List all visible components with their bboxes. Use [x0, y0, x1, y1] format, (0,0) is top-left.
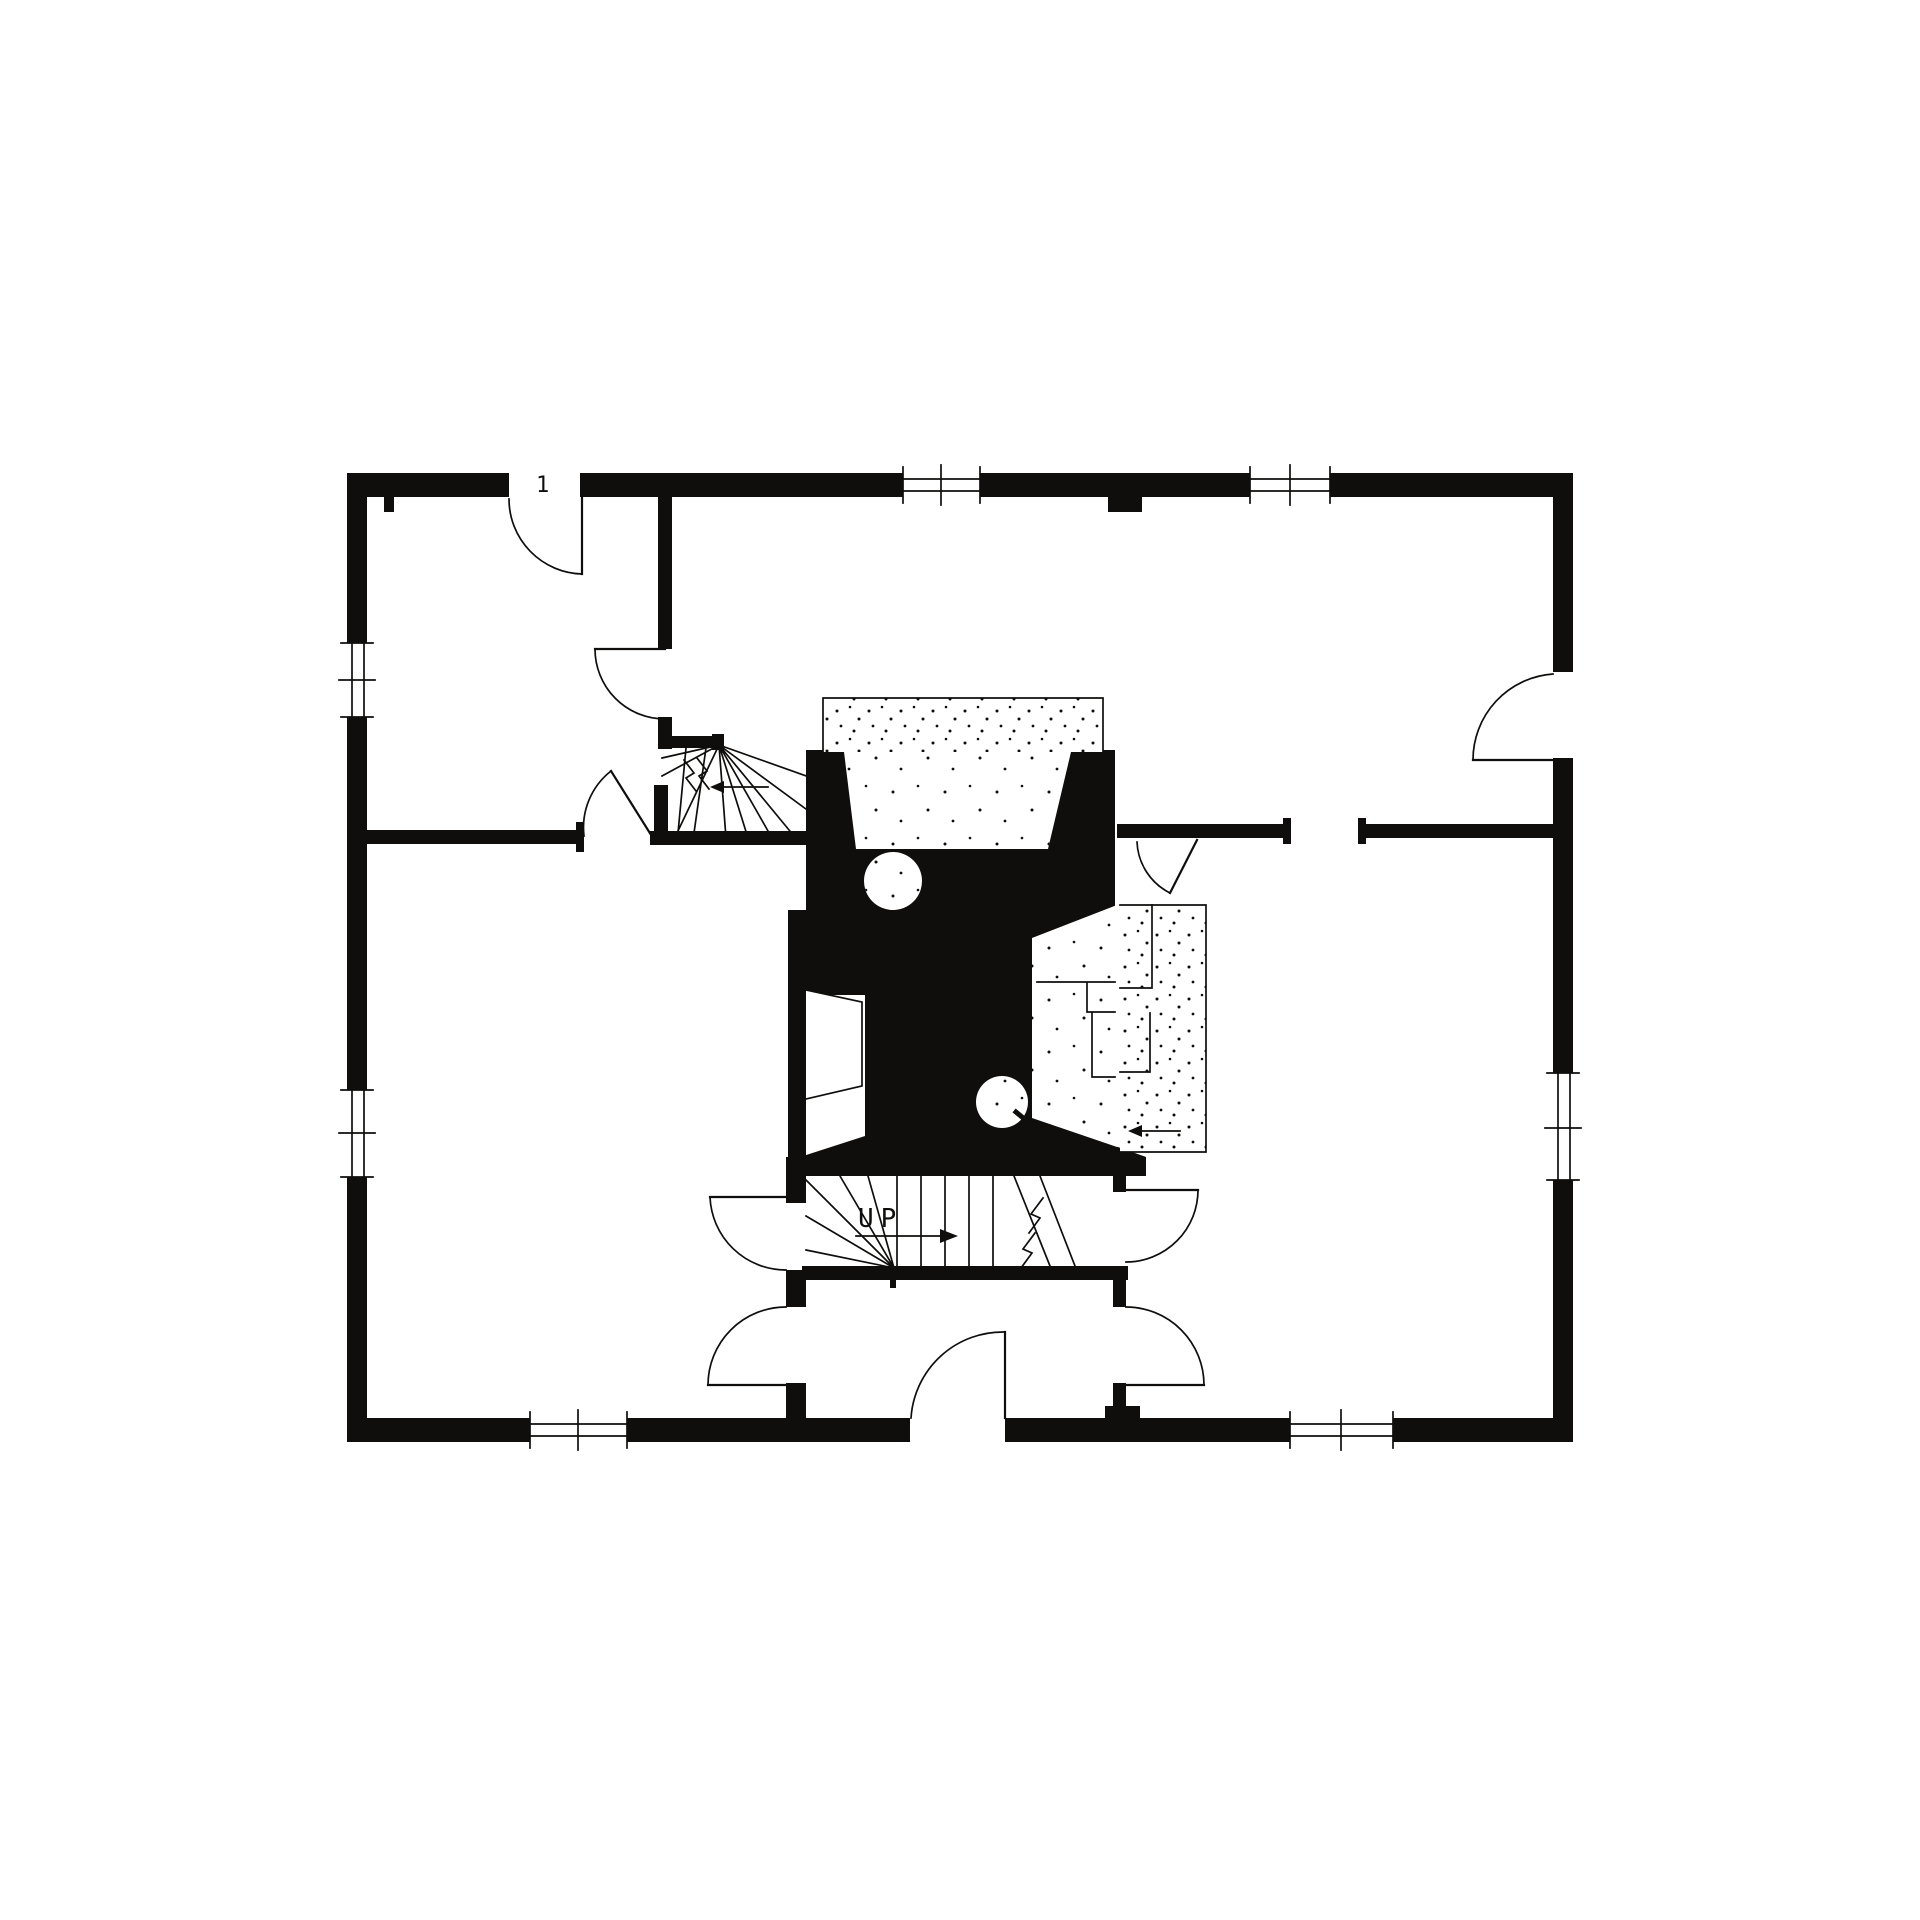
chimney-west-cheek	[788, 910, 806, 1157]
hall-west-wall-3	[786, 1383, 806, 1418]
wall-bottom-4	[1393, 1418, 1573, 1442]
door-tag-label: 1	[536, 473, 549, 498]
up-label: UP	[858, 1204, 903, 1234]
wall-top-3	[980, 473, 1250, 497]
wall-top-2	[580, 473, 903, 497]
wall-pier-northwest	[384, 497, 394, 512]
wall-pier-northeast	[1108, 497, 1142, 512]
wall-top-4	[1330, 473, 1573, 497]
wall-cap	[1358, 818, 1366, 844]
wall-right-1	[1553, 473, 1573, 672]
bake-oven-south	[976, 1076, 1028, 1128]
wall-left-1	[347, 473, 367, 643]
east-hearth	[1120, 905, 1206, 1152]
floor-plan-page: UP	[0, 0, 1920, 1920]
wall-bottom-3	[1005, 1418, 1290, 1442]
wall-right-3	[1553, 1180, 1573, 1442]
floor-plan-drawing: UP	[0, 0, 1920, 1920]
rear-stair-south-wall	[650, 831, 814, 845]
partition-northwest-room	[658, 497, 672, 649]
wall-top-1	[347, 473, 509, 497]
hall-east-wall-foot	[1105, 1406, 1140, 1418]
west-fireplace	[806, 990, 862, 1099]
wall-bottom-2	[627, 1418, 910, 1442]
stair-newel-post	[890, 1266, 896, 1288]
bake-oven-north	[864, 852, 922, 910]
east-fireplace	[1032, 905, 1117, 1147]
wall-left-3	[347, 1177, 367, 1442]
north-hearth	[823, 698, 1103, 752]
wall-east-divider-1	[1117, 824, 1287, 838]
wall-left-2	[347, 717, 367, 1090]
north-fireplace	[844, 752, 1071, 849]
wall-east-divider-2	[1362, 824, 1553, 838]
wall-west-room-north	[367, 830, 584, 844]
stair-stringer-wall	[802, 1266, 1128, 1280]
wall-right-2	[1553, 758, 1573, 1073]
wall-cap	[1283, 818, 1291, 844]
wall-bottom-1	[347, 1418, 530, 1442]
